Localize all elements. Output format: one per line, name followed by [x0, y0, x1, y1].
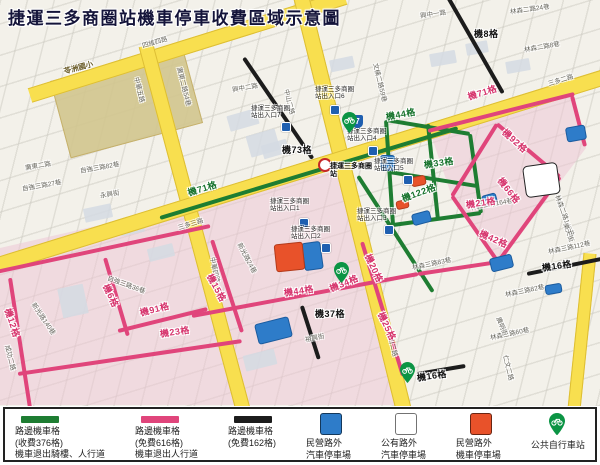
- legend-text: 公共自行車站: [531, 440, 585, 452]
- legend-swatch-line: [234, 416, 272, 423]
- mrt-exit-icon: [368, 146, 378, 156]
- legend-item-5: 民營路外機車停車場: [456, 413, 501, 461]
- legend-text: 路邊機車格: [135, 426, 198, 438]
- bike-icon: [400, 362, 415, 383]
- mrt-exit-icon: [330, 105, 340, 115]
- legend-item-3: 民營路外汽車停車場: [306, 413, 351, 461]
- legend-item-1: 路邊機車格(免費616格)機車退出人行道: [135, 413, 198, 461]
- bike-icon: [342, 112, 357, 133]
- legend-swatch-square: [470, 413, 492, 435]
- legend-text: (免費162格): [228, 438, 276, 450]
- mrt-station-label: 捷運三多商圈站: [330, 163, 378, 179]
- legend-item-6: 公共自行車站: [531, 413, 585, 452]
- public-car-park: [522, 162, 561, 199]
- free-zone-label-2: 機37格: [315, 307, 345, 320]
- mrt-exit-icon: [281, 122, 291, 132]
- free-zone-label-2: 機73格: [282, 143, 312, 156]
- mrt-exit-icon: [403, 175, 413, 185]
- legend-swatch-line: [21, 416, 59, 423]
- legend-text: 公有路外: [381, 438, 426, 450]
- legend-swatch-square: [320, 413, 342, 435]
- legend-text: 機車退出人行道: [135, 449, 198, 461]
- bike-icon: [334, 262, 349, 283]
- legend-item-2: 路邊機車格(免費162格): [228, 413, 276, 449]
- page-title: 捷運三多商圈站機車停車收費區域示意圖: [8, 4, 341, 29]
- mrt-exit-label: 捷運三多商圈站出入口5: [374, 158, 416, 173]
- legend-swatch-square: [395, 413, 417, 435]
- legend-item-0: 路邊機車格(收費376格)機車退出騎樓、人行道: [15, 413, 105, 461]
- private-moto-park: [274, 242, 306, 273]
- legend-text: (收費376格): [15, 438, 105, 450]
- free-zone-label-2: 機8格: [474, 27, 499, 40]
- mrt-exit-label: 捷運三多商圈站出入口1: [270, 198, 312, 213]
- legend-text: 民營路外: [306, 438, 351, 450]
- mrt-exit-label: 捷運三多商圈站出入口7: [251, 105, 293, 120]
- legend-text: 機車退出騎樓、人行道: [15, 449, 105, 461]
- legend-bike-station-icon: [549, 413, 585, 439]
- legend-text: 汽車停車場: [306, 450, 351, 462]
- legend-text: 民營路外: [456, 438, 501, 450]
- legend-text: 汽車停車場: [381, 450, 426, 462]
- mrt-exit-label: 捷運三多商圈站出入口3: [357, 208, 399, 223]
- legend-text: 路邊機車格: [15, 426, 105, 438]
- legend-text: (免費616格): [135, 438, 198, 450]
- legend-swatch-line: [141, 416, 179, 423]
- legend-box: 路邊機車格(收費376格)機車退出騎樓、人行道路邊機車格(免費616格)機車退出…: [3, 407, 597, 462]
- mrt-exit-icon: [321, 243, 331, 253]
- bike-icon: [549, 413, 565, 435]
- map-page: 苓洲國小四維四路中華五路中華四路中山二路中山二路三多二路三多三路興中一路興中二路…: [0, 0, 600, 465]
- map-canvas: 苓洲國小四維四路中華五路中華四路中山二路中山二路三多二路三多三路興中一路興中二路…: [0, 0, 600, 406]
- bike-station-pin: [400, 362, 415, 388]
- bike-station-pin: [342, 112, 357, 138]
- legend-item-4: 公有路外汽車停車場: [381, 413, 426, 461]
- mrt-exit-label: 捷運三多商圈站出入口2: [291, 226, 333, 241]
- bike-station-pin: [334, 262, 349, 288]
- mrt-exit-label: 捷運三多商圈站出入口6: [315, 86, 357, 101]
- mrt-exit-icon: [384, 225, 394, 235]
- legend-text: 機車停車場: [456, 450, 501, 462]
- legend-text: 路邊機車格: [228, 426, 276, 438]
